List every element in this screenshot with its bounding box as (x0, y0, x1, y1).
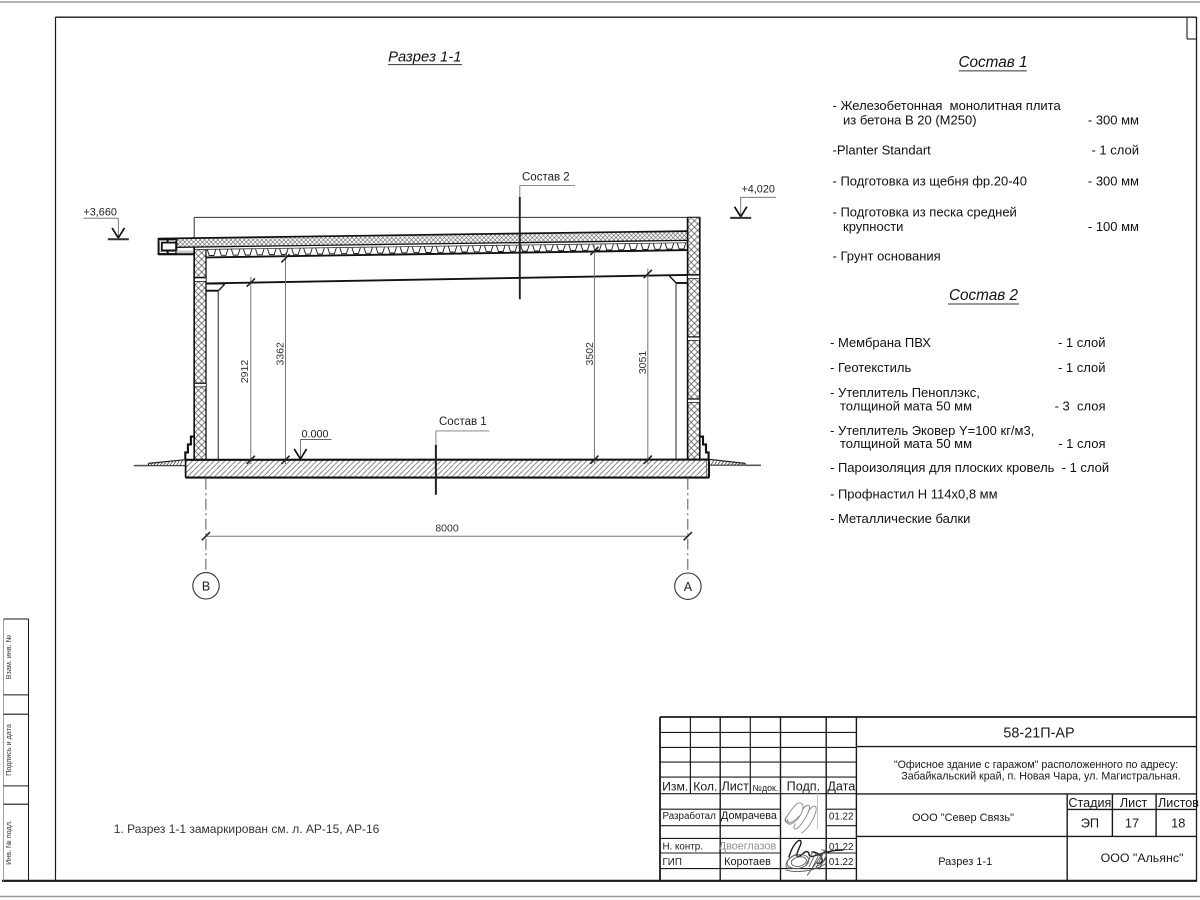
svg-text:- Геотекстиль: - Геотекстиль (830, 360, 911, 375)
svg-text:18: 18 (1171, 816, 1185, 831)
svg-text:Лист: Лист (722, 779, 750, 793)
svg-text:Дата: Дата (827, 779, 855, 793)
svg-text:- Подготовка из щебня фр.20-40: - Подготовка из щебня фр.20-40 (833, 174, 1028, 189)
svg-text:+4,020: +4,020 (742, 183, 775, 195)
svg-text:17: 17 (1125, 816, 1139, 831)
svg-text:Лист: Лист (1120, 796, 1148, 810)
svg-text:Н. контр.: Н. контр. (663, 842, 703, 853)
svg-text:ГИП: ГИП (663, 857, 682, 868)
svg-text:Домрачева: Домрачева (721, 810, 777, 822)
svg-text:Листов: Листов (1158, 796, 1199, 810)
svg-text:- Металлические балки: - Металлические балки (830, 511, 970, 526)
svg-text:А: А (684, 580, 693, 594)
svg-text:- 300 мм: - 300 мм (1088, 174, 1139, 189)
svg-text:Кол.: Кол. (693, 779, 717, 793)
svg-text:58-21П-АР: 58-21П-АР (1003, 726, 1074, 742)
svg-text:- 300 мм: - 300 мм (1088, 113, 1139, 128)
svg-text:Разработал: Разработал (663, 811, 717, 822)
svg-text:- 3 слоя: - 3 слоя (1055, 398, 1106, 413)
svg-text:0.000: 0.000 (302, 428, 329, 440)
svg-text:Разрез 1-1: Разрез 1-1 (388, 50, 461, 66)
svg-text:ЭП: ЭП (1081, 816, 1099, 831)
svg-text:3051: 3051 (637, 351, 649, 375)
svg-text:из бетона В 20 (М250): из бетона В 20 (М250) (843, 113, 977, 128)
svg-text:ООО "Альянс": ООО "Альянс" (1101, 851, 1184, 865)
svg-text:Состав 2: Состав 2 (949, 287, 1019, 304)
svg-text:- 1 слой: - 1 слой (1091, 143, 1139, 158)
svg-text:Коротаев: Коротаев (724, 856, 771, 868)
svg-text:01.22: 01.22 (829, 857, 854, 868)
svg-text:3362: 3362 (275, 342, 287, 366)
svg-text:№док.: №док. (753, 783, 779, 793)
svg-text:Инв. № подл.: Инв. № подл. (4, 820, 13, 865)
svg-text:Подпись и дата: Подпись и дата (4, 724, 13, 776)
svg-text:толщиной мата 50 мм: толщиной мата 50 мм (840, 398, 972, 413)
svg-text:- Мембрана ПВХ: - Мембрана ПВХ (830, 335, 931, 350)
svg-text:1. Разрез 1-1 замаркирован см.: 1. Разрез 1-1 замаркирован см. л. АР-15,… (114, 822, 380, 836)
svg-text:Подп.: Подп. (787, 779, 820, 793)
svg-text:2912: 2912 (239, 360, 251, 384)
svg-text:01.22: 01.22 (829, 812, 854, 823)
svg-text:Разрез 1-1: Разрез 1-1 (938, 856, 992, 868)
svg-text:Состав 2: Состав 2 (522, 172, 570, 184)
svg-text:- 1 слой: - 1 слой (1058, 360, 1106, 375)
svg-text:- Подготовка из песка средней: - Подготовка из песка средней (833, 205, 1017, 220)
svg-text:Состав 1: Состав 1 (958, 54, 1027, 71)
svg-text:- Профнастил Н 114х0,8 мм: - Профнастил Н 114х0,8 мм (830, 487, 998, 502)
svg-text:8000: 8000 (435, 523, 459, 535)
svg-text:- Пароизоляция для плоских кро: - Пароизоляция для плоских кровель - 1 с… (830, 460, 1109, 475)
svg-text:Состав 1: Состав 1 (439, 416, 487, 428)
svg-text:крупности: крупности (843, 219, 903, 234)
svg-text:толщиной мата 50 мм: толщиной мата 50 мм (840, 436, 972, 451)
svg-text:Стадия: Стадия (1068, 796, 1111, 810)
svg-text:Забайкальский край, п. Новая Ч: Забайкальский край, п. Новая Чара, ул. М… (901, 770, 1180, 782)
svg-text:Изм.: Изм. (662, 779, 688, 793)
svg-text:- 100 мм: - 100 мм (1088, 219, 1139, 234)
svg-text:"Офисное здание с гаражом" рас: "Офисное здание с гаражом" расположенног… (894, 759, 1178, 771)
svg-text:3502: 3502 (584, 342, 596, 366)
svg-text:- Грунт основания: - Грунт основания (833, 249, 941, 264)
svg-text:Взам. инв. №: Взам. инв. № (4, 634, 13, 679)
svg-text:+3,660: +3,660 (84, 206, 117, 218)
svg-text:- 1 слой: - 1 слой (1058, 335, 1106, 350)
svg-text:- Железобетонная монолитная п: - Железобетонная монолитная плита (833, 98, 1062, 113)
svg-text:В: В (202, 579, 210, 593)
svg-text:Двоеглазов: Двоеглазов (719, 841, 777, 853)
svg-text:-Planter Standart: -Planter Standart (833, 143, 932, 158)
svg-text:ООО "Север Связь": ООО "Север Связь" (912, 812, 1014, 824)
svg-text:- 1 слоя: - 1 слоя (1058, 436, 1105, 451)
